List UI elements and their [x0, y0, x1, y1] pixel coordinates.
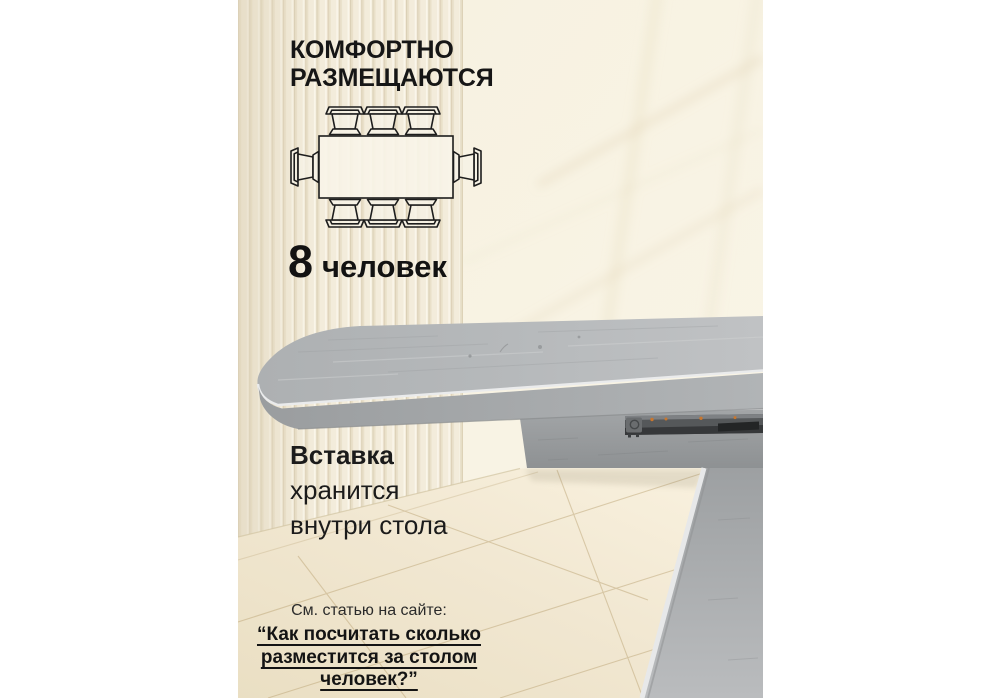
capacity-count: 8 человек [288, 236, 447, 288]
insert-note-line3: внутри стола [290, 508, 447, 543]
table-top-view-with-chairs-icon [280, 100, 484, 236]
article-quote-line3: человек?” [238, 669, 500, 692]
article-quote-line1: “Как посчитать сколько [238, 624, 500, 647]
tabletop [257, 316, 763, 429]
product-infographic-slide: КОМФОРТНО РАЗМЕЩАЮТСЯ 8 человек Вставк [0, 0, 1000, 700]
capacity-title-line1: КОМФОРТНО [290, 36, 493, 64]
photo-panel: КОМФОРТНО РАЗМЕЩАЮТСЯ 8 человек Вставк [238, 0, 763, 698]
capacity-number: 8 [288, 236, 313, 288]
insert-note: Вставка хранится внутри стола [290, 438, 447, 543]
article-quote-line2: разместится за столом [238, 647, 500, 670]
footer-intro: См. статью на сайте: [238, 602, 500, 620]
article-quote: “Как посчитать сколько разместится за ст… [238, 624, 500, 692]
capacity-title-line2: РАЗМЕЩАЮТСЯ [290, 64, 493, 92]
insert-note-line1: Вставка [290, 438, 447, 473]
capacity-label: человек [322, 249, 447, 285]
insert-note-line2: хранится [290, 473, 447, 508]
capacity-title: КОМФОРТНО РАЗМЕЩАЮТСЯ [290, 36, 493, 92]
diagram-table-rect [319, 136, 453, 198]
